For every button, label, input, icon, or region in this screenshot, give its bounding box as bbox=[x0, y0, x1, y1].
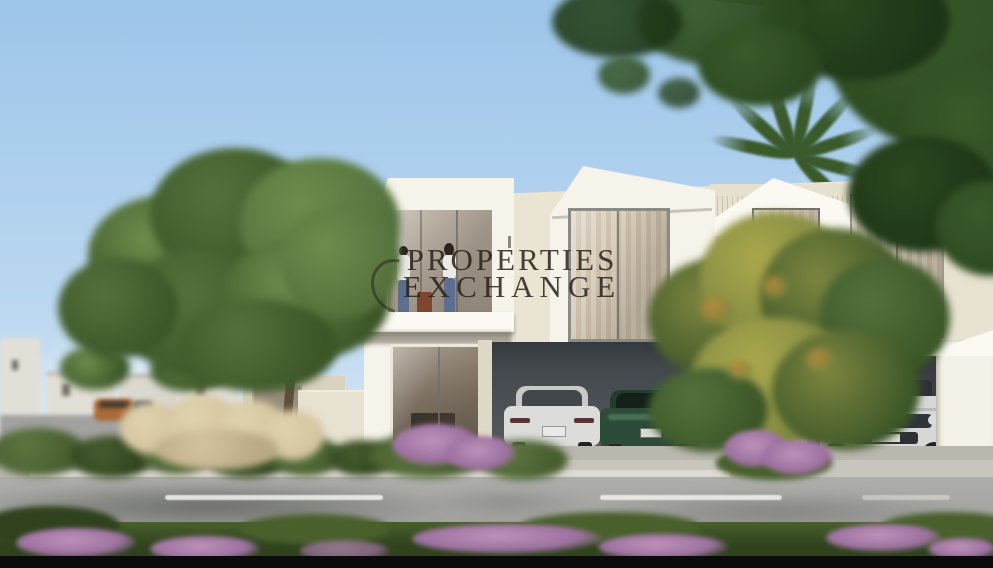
foliage-blob bbox=[728, 360, 752, 380]
flower-patch bbox=[762, 440, 834, 476]
grass-mound bbox=[240, 514, 390, 544]
flower-patch bbox=[412, 524, 602, 554]
flower-patch bbox=[826, 524, 942, 552]
foliage-blob bbox=[178, 300, 338, 392]
watermark-emblem-tick bbox=[508, 236, 511, 248]
lane-marking bbox=[862, 495, 950, 500]
bottom-black-bar bbox=[0, 556, 993, 568]
foliage-blob bbox=[698, 24, 822, 106]
foliage-blob bbox=[772, 330, 920, 450]
foliage-blob bbox=[806, 348, 834, 372]
foliage-sprig bbox=[658, 78, 700, 108]
sedan-plate bbox=[542, 426, 566, 437]
lane-marking bbox=[165, 495, 383, 500]
foliage-blob bbox=[762, 276, 788, 298]
flower-patch bbox=[16, 528, 136, 558]
foliage-blob bbox=[700, 296, 732, 324]
foliage-sprig bbox=[598, 56, 650, 94]
pampas-grass bbox=[155, 430, 279, 470]
real-estate-render: PROPERTIES EXCHANGE bbox=[0, 0, 993, 568]
sedan-taillight bbox=[510, 418, 530, 423]
sedan-taillight bbox=[574, 418, 594, 423]
lane-marking bbox=[600, 495, 782, 500]
flower-patch bbox=[446, 436, 516, 472]
watermark: PROPERTIES EXCHANGE bbox=[374, 244, 650, 302]
foliage-blob bbox=[58, 258, 178, 358]
